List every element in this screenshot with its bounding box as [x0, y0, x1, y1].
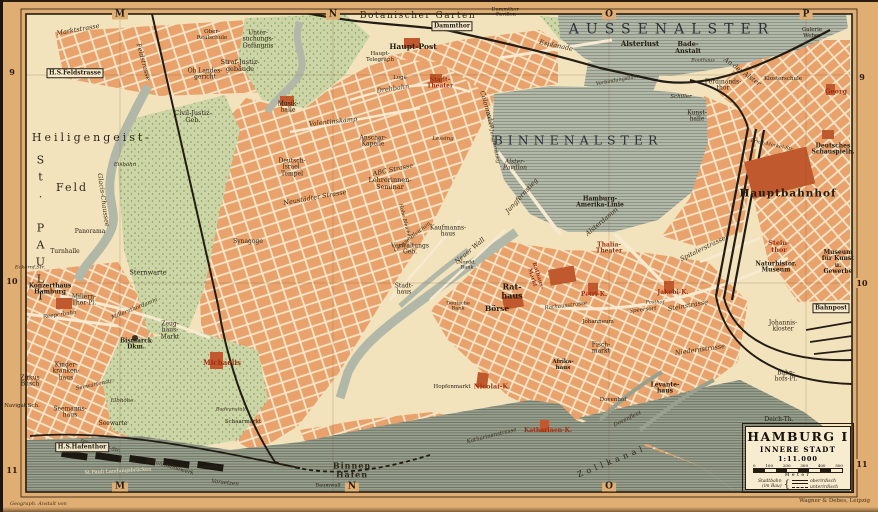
legend-brace: {: [784, 480, 790, 490]
page-edge-top: [0, 0, 878, 2]
scale-tick: 200: [783, 464, 791, 468]
scale-tick: 300: [800, 464, 808, 468]
map-sheet: MNOPMNO9101191011 AUSSENALSTERBINNENALST…: [0, 0, 878, 512]
hauptpost-building: [404, 38, 420, 48]
scale-bar-strip: [753, 468, 843, 473]
legend-line-dashed: [792, 487, 808, 488]
bismarck-denkmal: [132, 335, 138, 341]
michaeliskirche-building: [210, 352, 223, 369]
petrikirche-building: [588, 283, 598, 295]
map-title: HAMBURG I: [746, 429, 850, 444]
katharinenkirche-building: [540, 420, 549, 432]
musikhalle-building: [280, 96, 294, 106]
schauspielhaus-building: [822, 130, 834, 139]
scale-bar: 0100200300400500 Meter: [753, 464, 843, 478]
map-scale: 1:11.000: [746, 455, 850, 463]
legend: Stadtbahn (im Bau) { oberirdischunterird…: [746, 479, 850, 490]
georgkirche-building: [826, 84, 835, 95]
scale-tick: 0: [753, 464, 756, 468]
attribution-right: Wagner & Debes, Leipzig: [799, 498, 870, 504]
map-title-box: HAMBURG I INNERE STADT 1:11.000 01002003…: [745, 426, 851, 490]
legend-rows: oberirdischunterirdisch: [792, 479, 838, 490]
map-subtitle: INNERE STADT: [746, 445, 850, 454]
scale-tick: 500: [835, 464, 843, 468]
scale-tick: 400: [818, 464, 826, 468]
legend-row: unterirdisch: [792, 485, 838, 491]
page-edge-left: [0, 0, 3, 512]
page-edge-bottom: [0, 507, 878, 512]
legend-label: Stadtbahn (im Bau): [758, 480, 782, 490]
legend-item-label: unterirdisch: [810, 485, 838, 491]
nicolaikirche-building: [476, 372, 489, 388]
scale-unit: Meter: [753, 473, 843, 478]
konzerthaus-building: [56, 298, 72, 309]
scale-tick: 100: [765, 464, 773, 468]
legend-line-solid: [792, 480, 808, 484]
